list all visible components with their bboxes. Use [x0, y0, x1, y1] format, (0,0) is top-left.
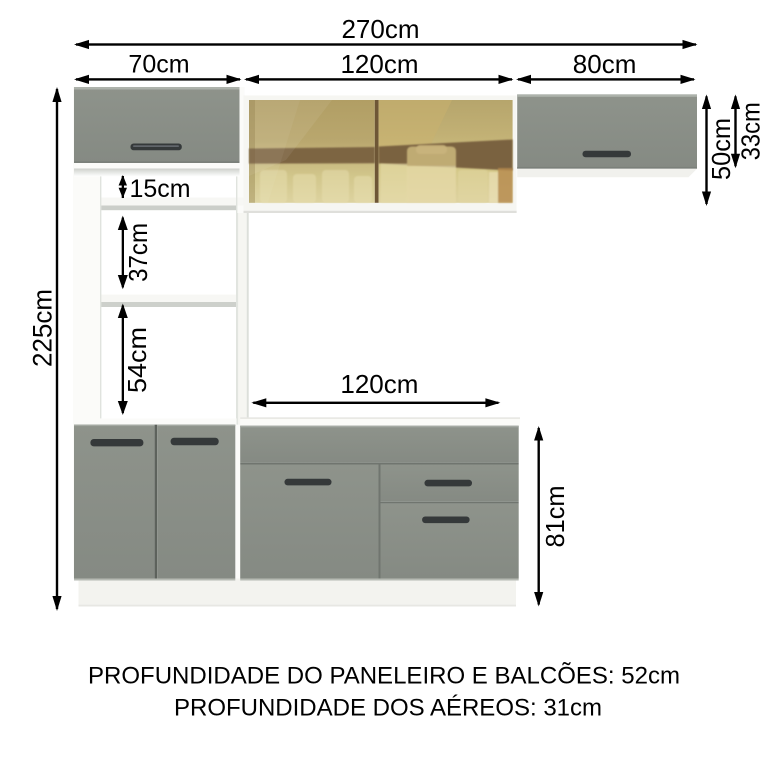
svg-text:PROFUNDIDADE DOS AÉREOS: 31cm: PROFUNDIDADE DOS AÉREOS: 31cm: [174, 694, 602, 721]
svg-text:37cm: 37cm: [123, 223, 153, 282]
svg-text:120cm: 120cm: [340, 49, 418, 79]
svg-text:80cm: 80cm: [573, 49, 637, 79]
svg-text:33cm: 33cm: [736, 102, 766, 160]
svg-text:50cm: 50cm: [706, 118, 736, 180]
svg-text:120cm: 120cm: [340, 369, 418, 399]
svg-text:70cm: 70cm: [128, 51, 189, 79]
svg-text:270cm: 270cm: [341, 14, 419, 44]
svg-text:225cm: 225cm: [28, 289, 58, 367]
svg-text:PROFUNDIDADE DO PANELEIRO E BA: PROFUNDIDADE DO PANELEIRO E BALCÕES: 52c…: [88, 662, 680, 690]
svg-text:15cm: 15cm: [130, 175, 191, 203]
svg-text:54cm: 54cm: [122, 327, 152, 393]
svg-text:81cm: 81cm: [540, 486, 570, 548]
